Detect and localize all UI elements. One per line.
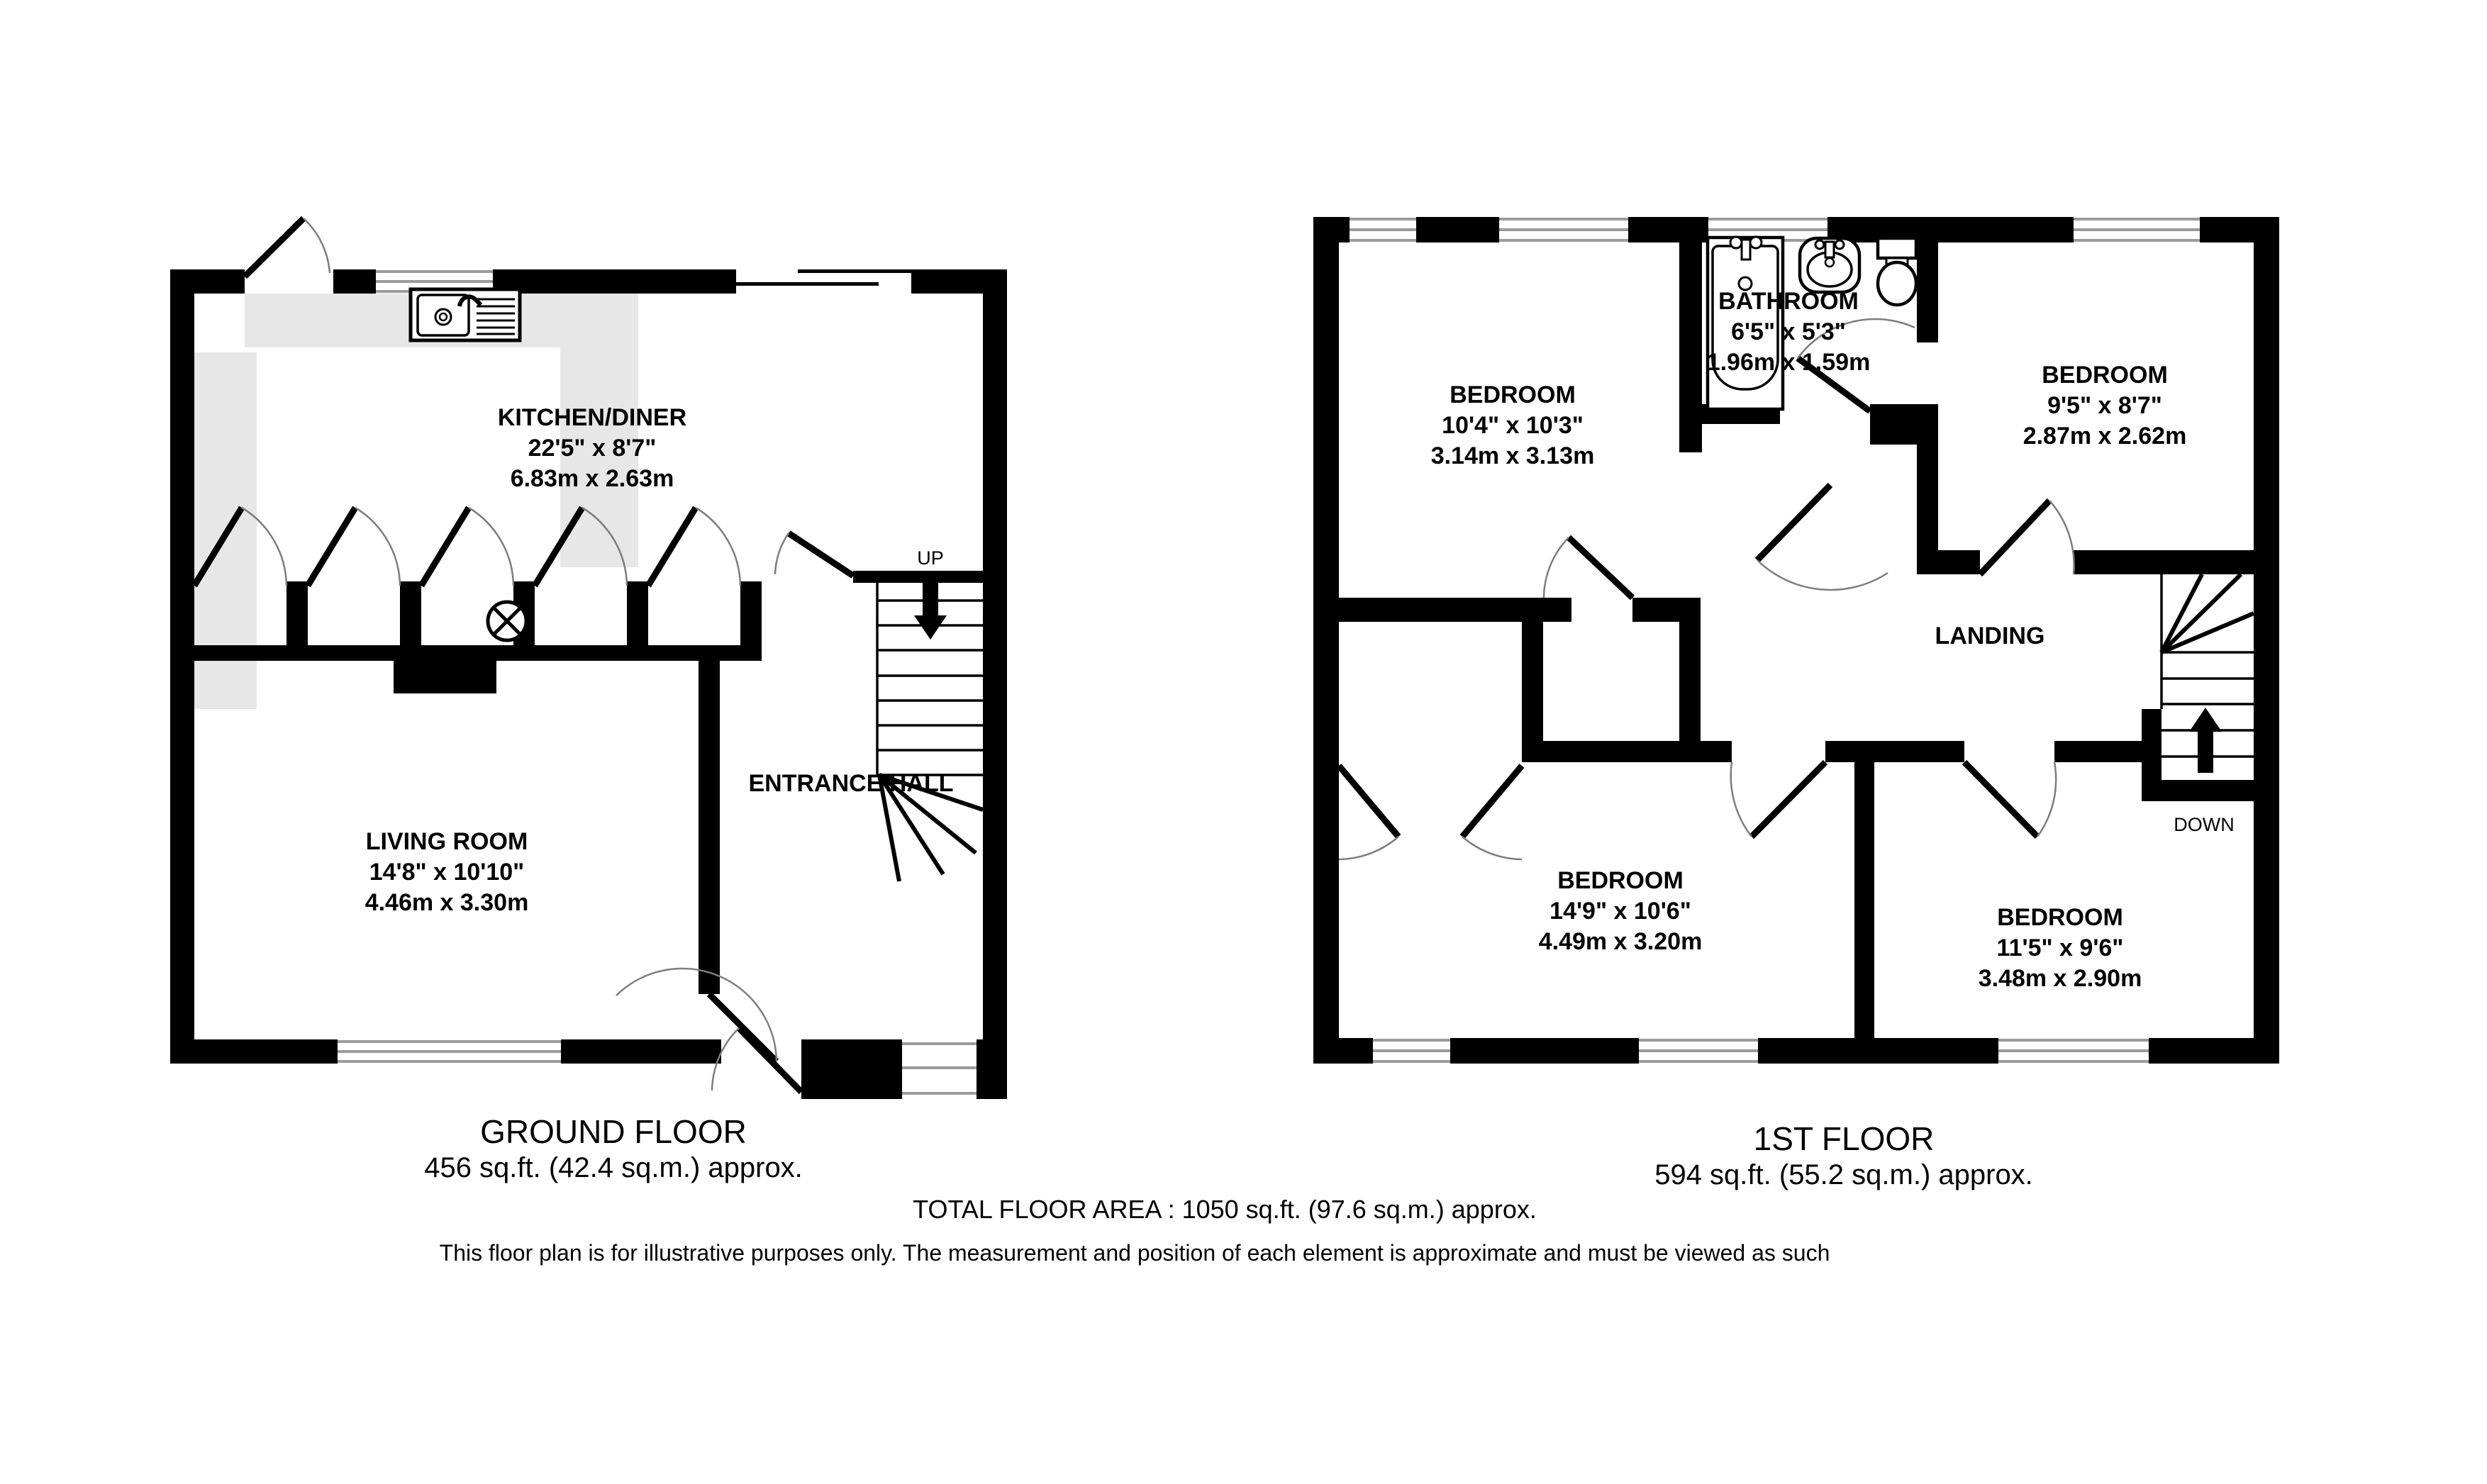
washbasin-icon [1800, 238, 1859, 292]
door-swing [1980, 501, 2074, 574]
room-size-metric: 4.46m x 3.30m [365, 889, 529, 916]
light-symbol-icon [488, 602, 526, 640]
door-swing [1964, 762, 2056, 837]
room-label-bathroom: BATHROOM 6'5" x 5'3" 1.96m x 1.59m [1707, 288, 1871, 376]
window [2074, 217, 2200, 242]
room-label-kitchen: KITCHEN/DINER 22'5" x 8'7" 6.83m x 2.63m [498, 404, 686, 492]
room-size-metric: 6.83m x 2.63m [511, 465, 674, 492]
room-size-imperial: 11'5" x 9'6" [1997, 935, 2124, 961]
room-name: BEDROOM [1557, 867, 1684, 894]
room-name: BEDROOM [1450, 381, 1576, 408]
window [902, 1039, 977, 1099]
room-label-living-room: LIVING ROOM 14'8" x 10'10" 4.46m x 3.30m [365, 828, 529, 916]
door-swing [421, 508, 513, 586]
door-swing [775, 533, 853, 576]
door-swing [1757, 485, 1888, 590]
room-size-metric: 4.49m x 3.20m [1539, 928, 1703, 955]
door-swing [1731, 762, 1825, 837]
room-size-metric: 3.48m x 2.90m [1979, 965, 2142, 992]
room-label-bedroom4: BEDROOM 11'5" x 9'6" 3.48m x 2.90m [1979, 904, 2142, 992]
room-label-landing: LANDING [1935, 623, 2045, 649]
floorplan-page: UP KITCHEN/DINER 22'5" x 8'7" 6.83m x 2.… [0, 0, 2487, 1484]
room-name: BEDROOM [1997, 904, 2123, 931]
window [1998, 1038, 2149, 1064]
footer: GROUND FLOOR 456 sq.ft. (42.4 sq.m.) app… [424, 1113, 2033, 1266]
gf-open-boundary-lines [736, 269, 941, 286]
room-label-bedroom2: BEDROOM 9'5" x 8'7" 2.87m x 2.62m [2023, 362, 2187, 450]
room-size-metric: 1.96m x 1.59m [1707, 349, 1871, 376]
window [1373, 1038, 1450, 1064]
door-swing [1462, 766, 1522, 859]
room-size-metric: 3.14m x 3.13m [1431, 442, 1595, 469]
room-name: BEDROOM [2042, 362, 2168, 389]
first-floor-plan: BEDROOM 10'4" x 10'3" 3.14m x 3.13m BATH… [1313, 217, 2279, 1064]
down-arrow-icon [2189, 708, 2222, 773]
room-size-imperial: 6'5" x 5'3" [1731, 318, 1846, 345]
gf-stairs-label: UP [917, 547, 944, 569]
gf-title: GROUND FLOOR [480, 1113, 747, 1150]
room-name: BATHROOM [1718, 288, 1859, 315]
room-label-bedroom3: BEDROOM 14'9" x 10'6" 4.49m x 3.20m [1539, 867, 1703, 955]
room-label-entrance-hall: ENTRANCE HALL [749, 770, 954, 797]
ff-stairs-label: DOWN [2174, 814, 2234, 835]
window [1350, 217, 1416, 242]
stairs-up [877, 580, 983, 881]
room-size-imperial: 14'8" x 10'10" [369, 859, 525, 886]
room-label-bedroom1: BEDROOM 10'4" x 10'3" 3.14m x 3.13m [1431, 381, 1595, 469]
window [338, 1039, 561, 1064]
room-size-imperial: 14'9" x 10'6" [1549, 898, 1691, 925]
room-size-imperial: 9'5" x 8'7" [2047, 392, 2162, 419]
room-size-metric: 2.87m x 2.62m [2023, 423, 2187, 450]
room-name: KITCHEN/DINER [498, 404, 686, 431]
gf-cupboard-doors [194, 508, 740, 586]
ground-floor-plan: UP KITCHEN/DINER 22'5" x 8'7" 6.83m x 2.… [170, 218, 1007, 1099]
up-arrow-icon [914, 580, 947, 640]
room-size-imperial: 10'4" x 10'3" [1442, 412, 1584, 439]
door-swing [1544, 537, 1632, 598]
total-floor-area: TOTAL FLOOR AREA : 1050 sq.ft. (97.6 sq.… [913, 1195, 1537, 1224]
room-size-imperial: 22'5" x 8'7" [528, 435, 657, 462]
ff-area: 594 sq.ft. (55.2 sq.m.) approx. [1654, 1159, 2033, 1190]
door-swing [245, 218, 330, 277]
floorplan-canvas: UP KITCHEN/DINER 22'5" x 8'7" 6.83m x 2.… [0, 0, 2487, 1484]
door-swing [308, 508, 400, 586]
kitchen-sink-icon [411, 289, 520, 340]
disclaimer: This floor plan is for illustrative purp… [440, 1240, 1830, 1266]
room-name: LIVING ROOM [366, 828, 528, 855]
window [1639, 1038, 1758, 1064]
stairs-down [2161, 574, 2254, 773]
door-swing [648, 508, 740, 586]
toilet-icon [1878, 238, 1916, 305]
gf-area: 456 sq.ft. (42.4 sq.m.) approx. [424, 1152, 803, 1183]
ff-title: 1ST FLOOR [1754, 1120, 1935, 1157]
window [1499, 217, 1628, 242]
door-swing [1339, 766, 1398, 859]
